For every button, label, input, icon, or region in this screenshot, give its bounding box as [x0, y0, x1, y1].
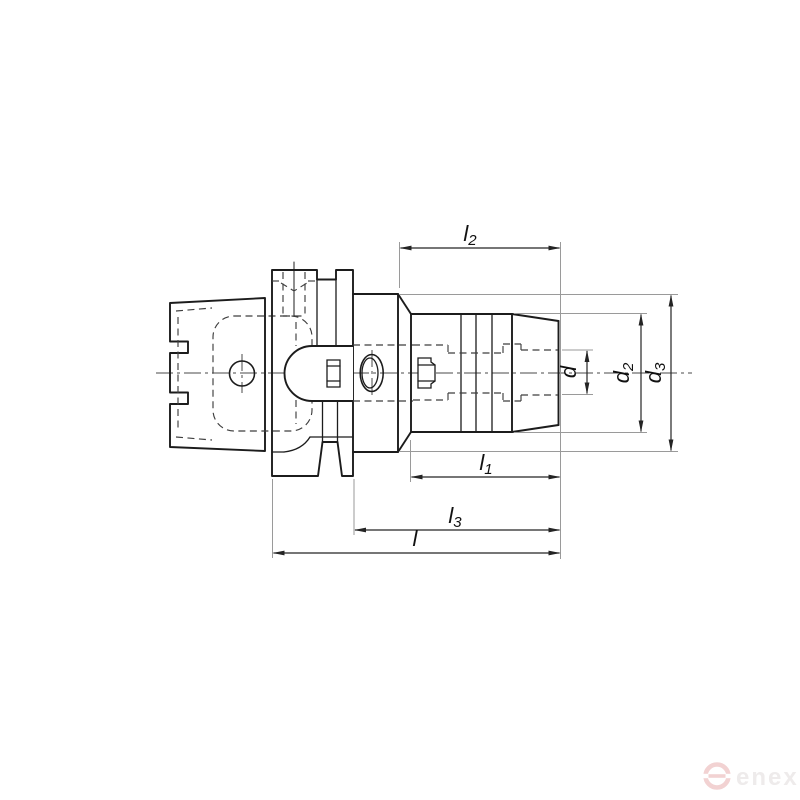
drawing-canvas: l2 l1 l3 l d d2 d3 enex	[0, 0, 800, 800]
technical-drawing: l2 l1 l3 l d d2 d3 enex	[0, 0, 800, 800]
label-l3: l3	[448, 503, 462, 531]
label-d2: d2	[609, 362, 637, 383]
dimension-labels: l2 l1 l3 l d d2 d3	[413, 221, 669, 551]
label-l1: l1	[479, 450, 492, 478]
clamping-capsule	[285, 346, 354, 401]
enex-logo-icon	[703, 765, 731, 788]
label-d3: d3	[641, 362, 669, 383]
label-l2: l2	[463, 221, 477, 249]
watermark: enex	[703, 764, 799, 791]
watermark-text: enex	[736, 764, 799, 791]
label-d: d	[556, 365, 581, 378]
